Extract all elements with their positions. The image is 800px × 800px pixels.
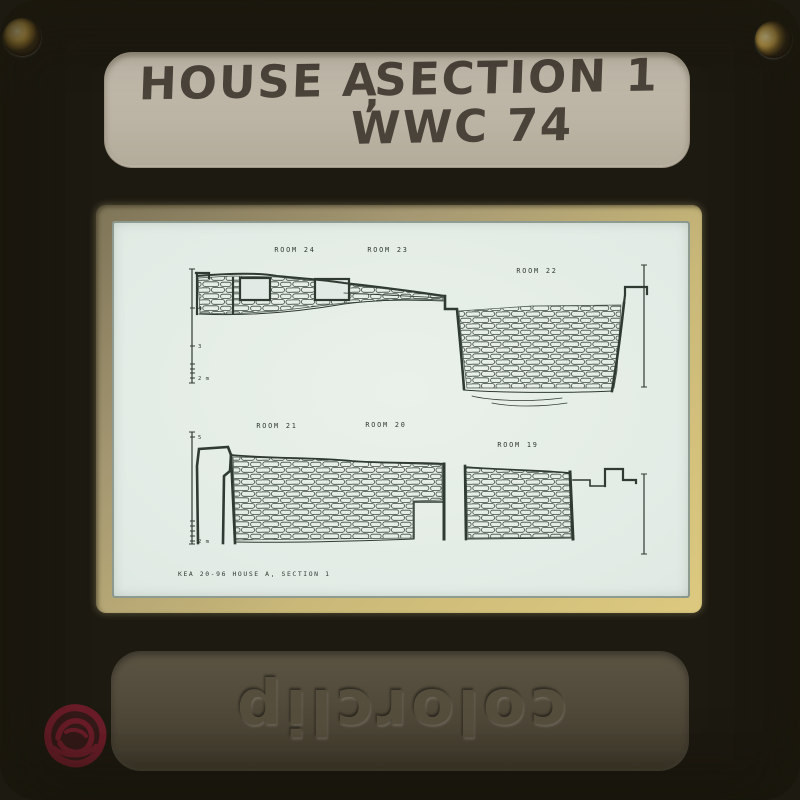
svg-text:5: 5 xyxy=(198,435,202,441)
section-drawing: 432 m52 mROOM 24ROOM 23ROOM 22ROOM 21ROO… xyxy=(112,221,690,598)
brand-emboss-panel: colorclip xyxy=(111,651,689,771)
mount-hole-right xyxy=(755,21,792,58)
film-transparency: 432 m52 mROOM 24ROOM 23ROOM 22ROOM 21ROO… xyxy=(112,221,690,598)
svg-text:ROOM 19: ROOM 19 xyxy=(497,441,538,449)
mount-hole-left xyxy=(3,18,41,56)
handwritten-line1-part1: HOUSE A xyxy=(138,55,380,109)
svg-text:ROOM 20: ROOM 20 xyxy=(365,421,406,429)
brand-name-embossed: colorclip xyxy=(233,675,566,748)
handwritten-label-panel: HOUSE A , SECTION 1 WWC 74 xyxy=(104,52,690,168)
red-marker-dot xyxy=(28,688,122,784)
svg-text:ROOM 21: ROOM 21 xyxy=(256,422,297,430)
handwritten-line2: WWC 74 xyxy=(104,98,690,158)
svg-text:2 m: 2 m xyxy=(198,539,210,545)
svg-text:3: 3 xyxy=(198,344,202,350)
handwritten-line1-part2: SECTION 1 xyxy=(374,52,660,105)
svg-text:2 m: 2 m xyxy=(198,376,210,382)
svg-text:ROOM 22: ROOM 22 xyxy=(516,267,557,275)
slide-photo: HOUSE A , SECTION 1 WWC 74 432 m52 mRO xyxy=(0,0,800,800)
svg-text:ROOM 24: ROOM 24 xyxy=(274,246,315,254)
svg-text:ROOM 23: ROOM 23 xyxy=(367,246,408,254)
svg-text:KEA 20-96 HOUSE A, SECTION 1: KEA 20-96 HOUSE A, SECTION 1 xyxy=(178,570,331,578)
svg-text:4: 4 xyxy=(198,306,202,312)
